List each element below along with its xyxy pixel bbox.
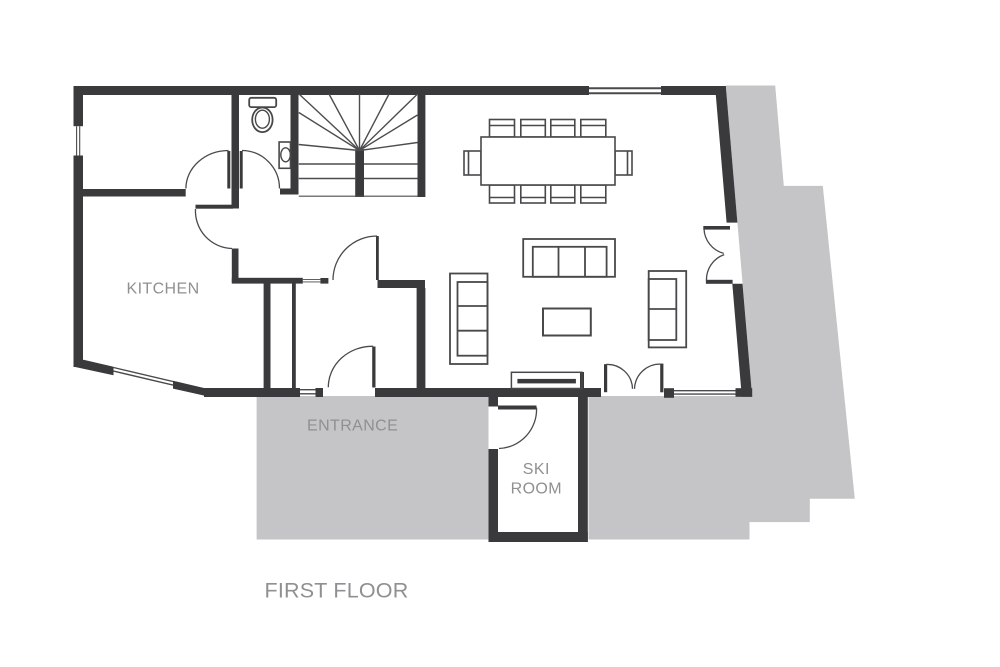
svg-text:FIRST FLOOR: FIRST FLOOR (265, 579, 409, 603)
svg-text:SKI: SKI (523, 461, 550, 478)
svg-text:ROOM: ROOM (511, 480, 562, 497)
svg-text:KITCHEN: KITCHEN (127, 281, 200, 298)
svg-text:ENTRANCE: ENTRANCE (307, 418, 398, 435)
